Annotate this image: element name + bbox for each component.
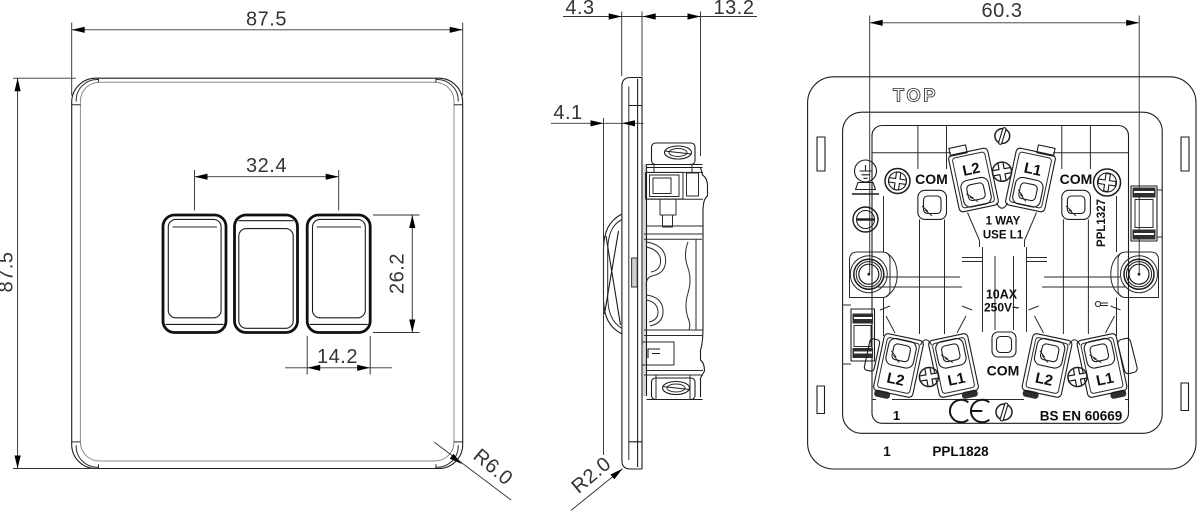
svg-text:60.3: 60.3 bbox=[982, 0, 1023, 22]
svg-text:L1: L1 bbox=[1095, 370, 1116, 390]
svg-text:14.2: 14.2 bbox=[317, 346, 358, 368]
svg-text:87.5: 87.5 bbox=[246, 9, 287, 31]
svg-text:COM: COM bbox=[987, 363, 1020, 379]
svg-text:R2.0: R2.0 bbox=[568, 453, 616, 498]
svg-text:1: 1 bbox=[883, 444, 891, 459]
svg-text:32.4: 32.4 bbox=[246, 155, 287, 177]
svg-text:L2: L2 bbox=[885, 370, 906, 390]
svg-text:PPL1828: PPL1828 bbox=[932, 444, 989, 459]
svg-text:L1: L1 bbox=[946, 370, 967, 390]
svg-text:PPL1327: PPL1327 bbox=[1096, 199, 1108, 247]
svg-text:COM: COM bbox=[1060, 171, 1093, 187]
svg-text:USE L1: USE L1 bbox=[983, 230, 1024, 242]
svg-text:26.2: 26.2 bbox=[387, 253, 409, 294]
svg-text:TOP: TOP bbox=[893, 85, 938, 106]
svg-text:L1: L1 bbox=[1022, 160, 1043, 180]
svg-text:L2: L2 bbox=[1034, 370, 1055, 390]
svg-text:250V~: 250V~ bbox=[984, 301, 1019, 315]
svg-text:R6.0: R6.0 bbox=[469, 445, 517, 490]
svg-text:87.5: 87.5 bbox=[0, 252, 18, 293]
svg-text:10AX: 10AX bbox=[986, 288, 1018, 302]
svg-text:L2: L2 bbox=[961, 160, 982, 180]
svg-text:1 WAY: 1 WAY bbox=[986, 216, 1021, 228]
svg-text:4.1: 4.1 bbox=[553, 102, 582, 124]
svg-text:COM: COM bbox=[915, 171, 948, 187]
svg-text:1: 1 bbox=[893, 408, 900, 423]
svg-text:BS EN 60669: BS EN 60669 bbox=[1040, 409, 1123, 424]
